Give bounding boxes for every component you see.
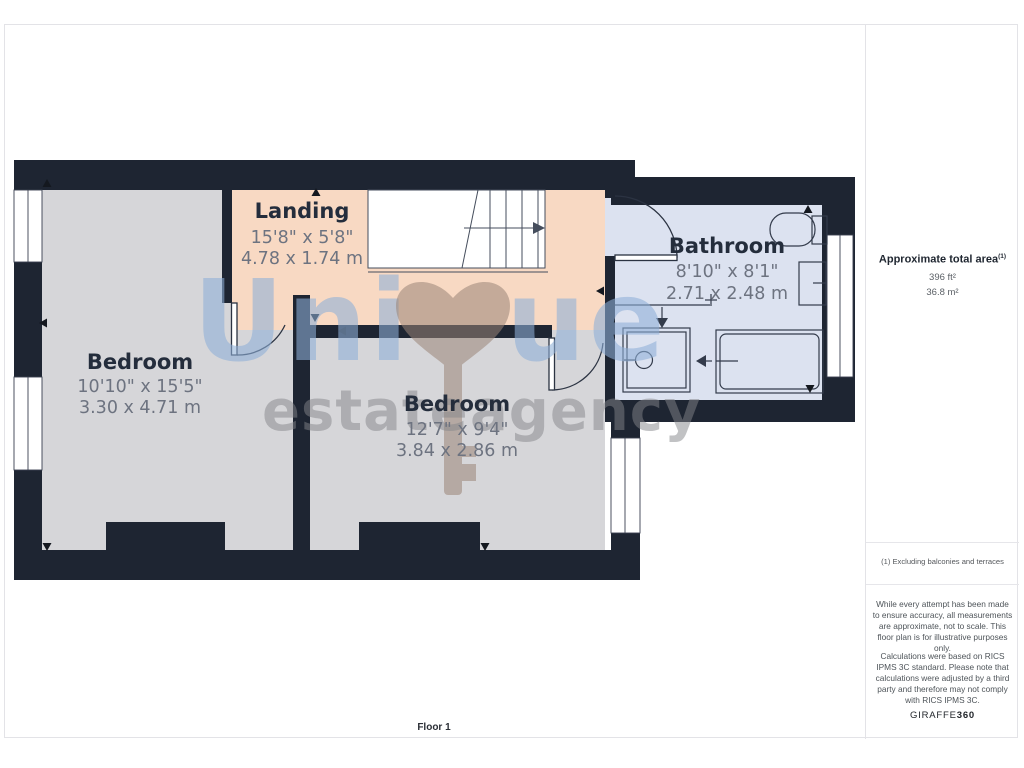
wall-bottom: [14, 550, 640, 580]
bedroom1-metric: 3.30 x 4.71 m: [79, 398, 201, 418]
bathroom-name: Bathroom: [669, 234, 785, 258]
sidebar-rule-2: [866, 584, 1019, 585]
chimney-breast-2: [359, 522, 480, 550]
window-right: [611, 438, 640, 533]
wall-landing-bath-upper: [605, 160, 615, 198]
wall-top: [14, 160, 635, 190]
floor-label: Floor 1: [4, 722, 864, 733]
area-title-superscript: (1): [998, 253, 1006, 260]
bathroom-imperial: 8'10" x 8'1": [676, 262, 779, 282]
bedroom1-name: Bedroom: [87, 350, 193, 374]
area-title-text: Approximate total area: [879, 254, 998, 266]
floorplan-page: Uni ue estate agency Bedroom 10'10" x 15…: [0, 0, 1024, 768]
bedroom1-imperial: 10'10" x 15'5": [77, 377, 202, 397]
landing-metric: 4.78 x 1.74 m: [241, 249, 363, 269]
watermark-uni-text: Uni: [193, 257, 411, 387]
bathroom-metric: 2.71 x 2.48 m: [666, 284, 788, 304]
brand-text: GIRAFFE: [910, 710, 957, 721]
watermark-ue-text: ue: [506, 257, 668, 387]
landing-name: Landing: [255, 199, 350, 223]
chimney-breast-1: [106, 522, 225, 550]
brand-text-bold: 360: [957, 710, 975, 721]
bathroom-doorway-gap: [605, 198, 615, 256]
floorplan-drawing: Uni ue estate agency Bedroom 10'10" x 15…: [0, 0, 1024, 768]
area-value-ft: 396 ft²: [866, 272, 1019, 283]
area-value-m: 36.8 m²: [866, 287, 1019, 298]
disclaimer-accuracy: While every attempt has been made to ens…: [872, 599, 1013, 654]
wall-bathroom-top: [611, 177, 855, 205]
giraffe360-logo: GIRAFFE360: [866, 710, 1019, 721]
landing-imperial: 15'8" x 5'8": [251, 228, 354, 248]
sidebar-rule-1: [866, 542, 1019, 543]
bedroom2-metric: 3.84 x 2.86 m: [396, 441, 518, 461]
bedroom2-name: Bedroom: [404, 392, 510, 416]
area-footnote: (1) Excluding balconies and terraces: [866, 557, 1019, 566]
disclaimer-rics: Calculations were based on RICS IPMS 3C …: [872, 651, 1013, 706]
bedroom2-imperial: 12'7" x 9'4": [406, 420, 509, 440]
area-title: Approximate total area(1): [866, 253, 1019, 266]
